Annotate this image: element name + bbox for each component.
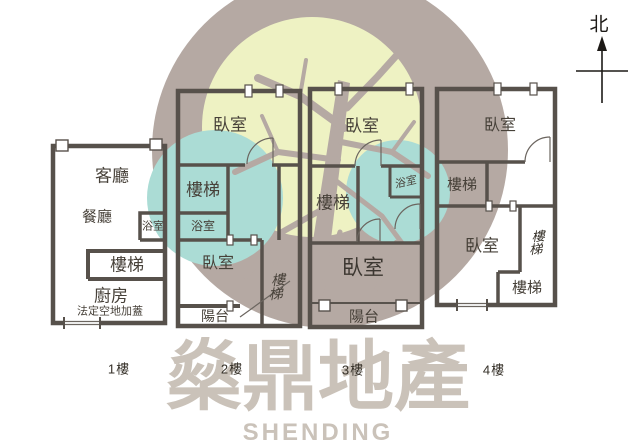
f3-balcony-label: 陽台 [349,310,379,325]
f4-stairs-label: 樓梯 [447,178,477,193]
f2-bedroom-top-label: 臥室 [213,117,247,134]
f3-floor-label: 3樓 [342,364,364,377]
f4-bedroom-top-label: 臥室 [484,118,516,134]
f3-stairs-label: 樓梯 [316,195,350,212]
compass-arrow-icon [576,36,628,103]
f2-bedroom-bottom-label: 臥室 [202,256,234,272]
f4-bottom-stairs-label: 樓梯 [512,281,542,296]
f1-annex-label: 法定空地加蓋 [77,307,143,318]
f4-bedroom-door-icon [525,137,550,162]
f2-balcony-label: 陽台 [201,309,229,323]
f1-floor-label: 1樓 [108,363,130,376]
floorplan-page: 燊鼎地產 SHENDING 北 客廳 餐廳 浴室 樓梯 廚房 法定空地加蓋 1樓… [0,0,640,445]
brand-watermark-en: SHENDING [243,421,394,445]
f1-living-room-label: 客廳 [95,168,129,185]
f1-window-icon [150,139,162,150]
f2-stairs-label: 樓梯 [186,182,220,199]
f1-bathroom-label: 浴室 [142,222,164,233]
f3-balcony-post-icon [319,300,330,311]
f4-floor-label: 4樓 [483,364,505,377]
f4-bedroom-bottom-label: 臥室 [465,238,499,255]
f3-bedroom-top-label: 臥室 [345,118,379,135]
f1-dining-room-label: 餐廳 [82,210,112,225]
brand-watermark-text: 燊鼎地產 [166,340,470,416]
f1-bottom-window-icon [63,317,101,329]
f1-stairs-label: 樓梯 [110,257,144,274]
f1-kitchen-label: 廚房 [94,288,128,305]
f2-bathroom-label: 浴室 [191,220,215,232]
compass-north-label: 北 [589,10,608,37]
f1-window-icon [56,140,68,151]
f3-balcony-post-icon [396,300,407,311]
f4-bottom-window-icon [456,299,488,311]
f2-floor-label: 2樓 [221,363,243,376]
f3-bedroom-bottom-label: 臥室 [342,258,384,279]
